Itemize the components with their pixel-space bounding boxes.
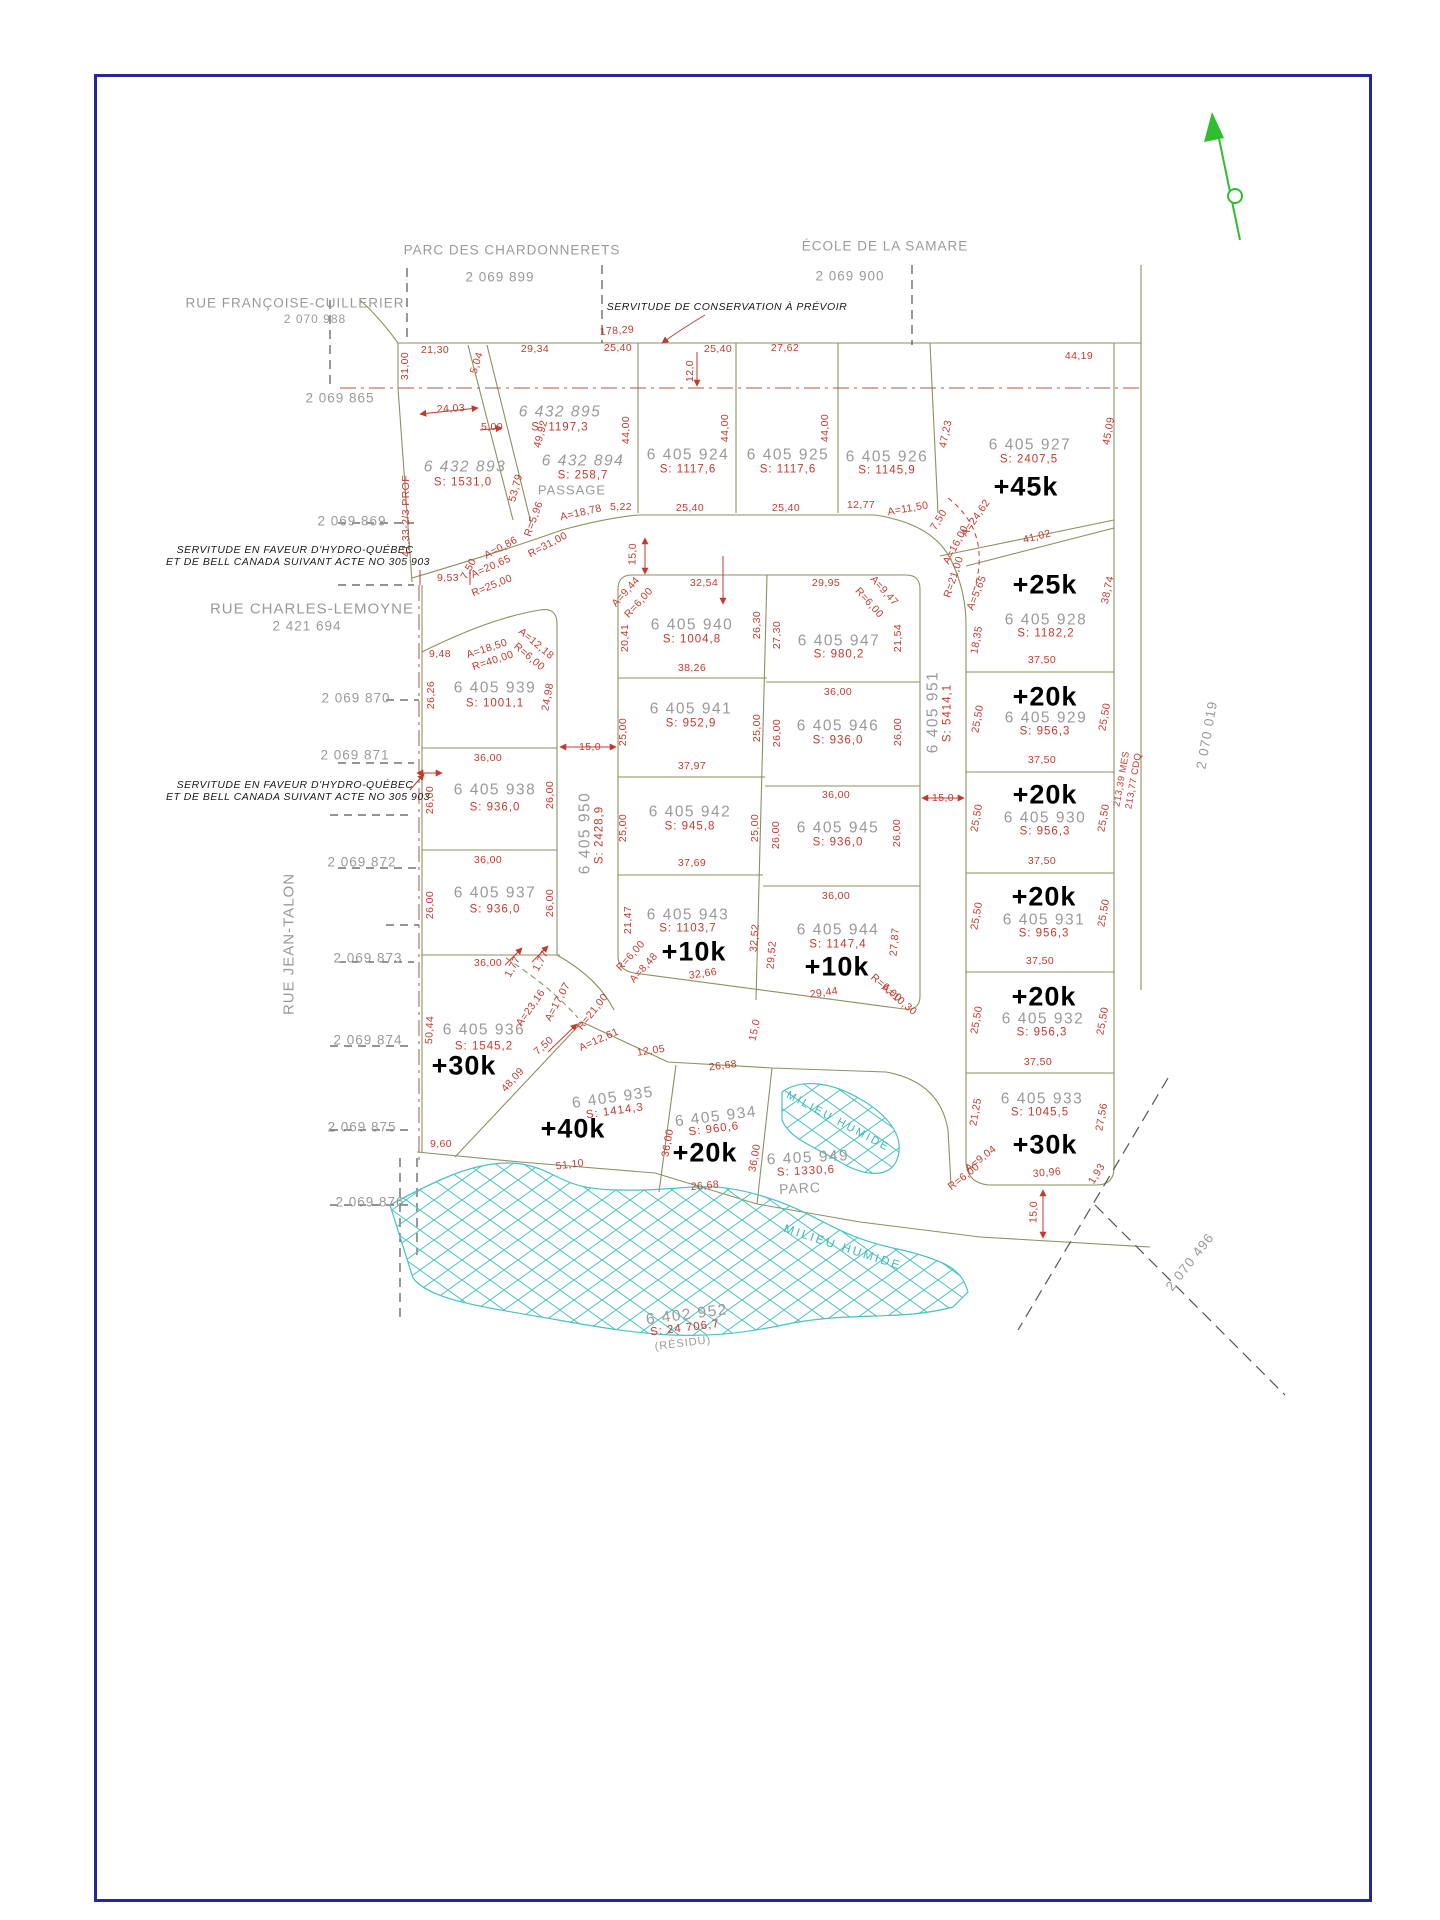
dim: 44,00 (621, 416, 632, 444)
servitude-hydro-note-2b: ET DE BELL CANADA SUIVANT ACTE NO 305 90… (166, 792, 430, 803)
bonus-6405936: +30k (432, 1053, 497, 1080)
dim: 25,40 (676, 503, 704, 514)
ecole-de-la-samare: ÉCOLE DE LA SAMARE (802, 239, 969, 253)
dim: 178,29 (599, 325, 634, 338)
dim: 25,00 (618, 718, 629, 746)
dim: 25,00 (750, 814, 761, 842)
dim: 37,97 (678, 761, 706, 772)
dim: 32,52 (749, 923, 762, 952)
bonus-6405934: +20k (673, 1140, 738, 1167)
bonus-6405928: +25k (1013, 572, 1078, 599)
bonus-6405930: +20k (1013, 782, 1078, 809)
lot-6405942: 6 405 942 (649, 804, 731, 820)
rue-charles-lemoyne: RUE CHARLES-LEMOYNE (210, 602, 414, 617)
area-6405946: S: 936,0 (813, 735, 864, 747)
lot-2069865: 2 069 865 (305, 391, 374, 405)
dim: 26,00 (425, 786, 436, 814)
dim: 21,54 (893, 624, 904, 652)
lot-6405924: 6 405 924 (647, 447, 729, 463)
dim: 36,00 (474, 753, 502, 764)
lot-6405947: 6 405 947 (798, 633, 880, 649)
dim: 37,50 (1028, 755, 1056, 766)
dim: 31,00 (400, 352, 411, 380)
area-6405933: S: 1045,5 (1011, 1107, 1069, 1119)
dim: 5,22 (610, 502, 632, 513)
dim: 21,30 (421, 345, 449, 356)
dim: 44,19 (1065, 351, 1093, 362)
lot-6405943: 6 405 943 (647, 907, 729, 923)
lot-2421694: 2 421 694 (272, 619, 341, 633)
dim: 37,50 (1028, 856, 1056, 867)
area-6405927: S: 2407,5 (1000, 454, 1058, 466)
area-6405950: S: 2428,9 (594, 806, 606, 864)
dim: 26,00 (892, 819, 903, 847)
dim: 25,00 (618, 814, 629, 842)
lot-2069876: 2 069 876 (335, 1195, 404, 1209)
dim: 12,77 (847, 500, 875, 511)
lot-6432893: 6 432 893 (424, 459, 506, 475)
dim: 9,53 (437, 573, 459, 584)
lot-6405950: 6 405 950 (577, 792, 593, 874)
lot-6405944: 6 405 944 (797, 922, 879, 938)
dim: 26,68 (690, 1180, 719, 1193)
servitude-hydro-note-1: SERVITUDE EN FAVEUR D'HYDRO-QUÉBEC (177, 545, 414, 556)
dim: 5,00 (481, 422, 503, 433)
lot-2069900: 2 069 900 (815, 269, 884, 283)
area-6405932: S: 956,3 (1017, 1027, 1068, 1039)
bonus-6405933: +30k (1013, 1132, 1078, 1159)
north-arrow-icon (1204, 112, 1242, 240)
dim: 26,30 (752, 611, 763, 639)
area-6405942: S: 945,8 (665, 821, 716, 833)
lot-6432894: 6 432 894 (542, 453, 624, 469)
dim: 29,34 (521, 344, 549, 355)
dim: 9,48 (429, 649, 451, 660)
bonus-6405931: +20k (1012, 884, 1077, 911)
area-6405926: S: 1145,9 (858, 465, 915, 477)
area-6405937: S: 936,0 (470, 904, 521, 916)
passage-label: PASSAGE (538, 484, 606, 497)
bonus-6405929: +20k (1013, 684, 1078, 711)
area-6405945: S: 936,0 (813, 837, 864, 849)
dim: 27,30 (772, 621, 783, 649)
area-6432893: S: 1531,0 (434, 477, 492, 489)
area-6432894: S: 258,7 (558, 470, 609, 482)
area-6405925: S: 1117,6 (760, 464, 817, 476)
dim: 29,95 (812, 578, 840, 589)
lot-6432895: 6 432 895 (519, 404, 601, 420)
dim: 20,41 (620, 624, 631, 652)
bonus-6405935: +40k (541, 1116, 606, 1143)
lot-2069870: 2 069 870 (321, 691, 390, 705)
area-6405940: S: 1004,8 (663, 634, 721, 646)
dim: 36,00 (474, 958, 502, 969)
lot-6405936: 6 405 936 (443, 1022, 525, 1038)
lot-6405940: 6 405 940 (651, 617, 733, 633)
lot-6405929: 6 405 929 (1005, 710, 1087, 726)
dim: 29,52 (766, 940, 779, 969)
bonus-6405932: +20k (1012, 984, 1077, 1011)
lot-6405931: 6 405 931 (1003, 912, 1085, 928)
dim: 15,0 (627, 543, 638, 565)
dim: 25,40 (604, 343, 632, 354)
lot-6405925: 6 405 925 (747, 447, 829, 463)
area-6405951: S: 5414,1 (942, 684, 954, 742)
dim: 36,00 (824, 687, 852, 698)
dim: 26,00 (893, 718, 904, 746)
area-6405938: S: 936,0 (470, 802, 521, 814)
dim: 50,44 (424, 1016, 436, 1045)
dim: 38,26 (678, 663, 706, 674)
lot-6405945: 6 405 945 (797, 820, 879, 836)
dim: 36,00 (474, 855, 502, 866)
lot-2069875: 2 069 875 (327, 1120, 396, 1134)
servitude-conservation-note: SERVITUDE DE CONSERVATION À PRÉVOIR (607, 302, 847, 313)
lot-6405932: 6 405 932 (1002, 1011, 1084, 1027)
lot-6405927: 6 405 927 (989, 437, 1071, 453)
dim: 36,00 (822, 790, 850, 801)
dim: 32,54 (690, 578, 718, 589)
area-6405924: S: 1117,6 (660, 464, 717, 476)
dim: 37,50 (1028, 655, 1056, 666)
dim: 30,96 (1032, 1167, 1061, 1180)
lot-2070988: 2 070 988 (284, 313, 346, 325)
dim: 26,00 (425, 891, 436, 919)
dim: 37,50 (1024, 1057, 1052, 1068)
area-6405941: S: 952,9 (666, 718, 717, 730)
lot-6405937: 6 405 937 (454, 885, 536, 901)
dim: 27,87 (889, 927, 902, 956)
dim: 26,26 (426, 681, 437, 709)
lot-6405939: 6 405 939 (454, 680, 536, 696)
dim: 21,47 (623, 906, 634, 934)
dim: 37,50 (1026, 956, 1054, 967)
lot-2069871: 2 069 871 (320, 748, 389, 762)
dim: 36,00 (822, 891, 850, 902)
dim: 24,03 (437, 403, 466, 415)
dim: 44,00 (720, 414, 731, 442)
dim: 44,00 (820, 414, 831, 442)
lot-6405926: 6 405 926 (846, 449, 928, 465)
parc-label: PARC (779, 1180, 822, 1196)
servitude-hydro-note-2: SERVITUDE EN FAVEUR D'HYDRO-QUÉBEC (177, 780, 414, 791)
dim: 26,00 (545, 889, 556, 917)
bonus-6405927: +45k (994, 474, 1059, 501)
dim: 26,00 (545, 781, 556, 809)
lot-2069874: 2 069 874 (333, 1033, 402, 1047)
rue-francoise-cuillerier: RUE FRANÇOISE-CUILLERIER (185, 296, 404, 310)
area-6405930: S: 956,3 (1020, 826, 1071, 838)
bonus-6405943: +10k (662, 939, 727, 966)
lot-6405933: 6 405 933 (1001, 1091, 1083, 1107)
lot-6405951: 6 405 951 (925, 671, 941, 753)
lot-2069869: 2 069 869 (317, 514, 386, 528)
parc-des-chardonnerets: PARC DES CHARDONNERETS (404, 243, 621, 257)
area-6405928: S: 1182,2 (1017, 628, 1074, 640)
bonus-6405944: +10k (805, 954, 870, 981)
dim: 15,0 (579, 742, 601, 753)
dim: 41,33-2/3 PROF (401, 475, 412, 557)
dim: 37,69 (678, 858, 706, 869)
servitude-hydro-note-1b: ET DE BELL CANADA SUIVANT ACTE NO 305 90… (166, 557, 430, 568)
area-6405929: S: 956,3 (1020, 726, 1071, 738)
lot-6405946: 6 405 946 (797, 718, 879, 734)
lot-6405928: 6 405 928 (1005, 612, 1087, 628)
lot-6405941: 6 405 941 (650, 701, 732, 717)
rue-jean-talon: RUE JEAN-TALON (282, 873, 297, 1015)
lot-2069872: 2 069 872 (327, 855, 396, 869)
dim: 25,00 (752, 714, 763, 742)
lot-6405938: 6 405 938 (454, 782, 536, 798)
dim: 9,60 (430, 1139, 452, 1150)
area-6405931: S: 956,3 (1019, 928, 1070, 940)
dim: 15,0 (932, 793, 954, 804)
plan-page: PARC DES CHARDONNERETS2 069 899ÉCOLE DE … (0, 0, 1440, 1920)
lot-2069873: 2 069 873 (333, 951, 402, 965)
area-6405947: S: 980,2 (814, 649, 865, 661)
dim: 26,00 (772, 719, 783, 747)
area-6405939: S: 1001,1 (466, 698, 524, 710)
lot-2069899: 2 069 899 (465, 270, 534, 284)
dim: 27,62 (771, 343, 799, 354)
dim: 25,40 (704, 344, 732, 355)
area-6405944: S: 1147,4 (809, 939, 866, 951)
dim: 15,0 (1028, 1201, 1039, 1223)
area-6405943: S: 1103,7 (659, 923, 716, 935)
dim: 12,0 (685, 360, 696, 382)
dim: 26,00 (771, 821, 782, 849)
lot-6405930: 6 405 930 (1004, 810, 1086, 826)
dim: 25,40 (772, 503, 800, 514)
